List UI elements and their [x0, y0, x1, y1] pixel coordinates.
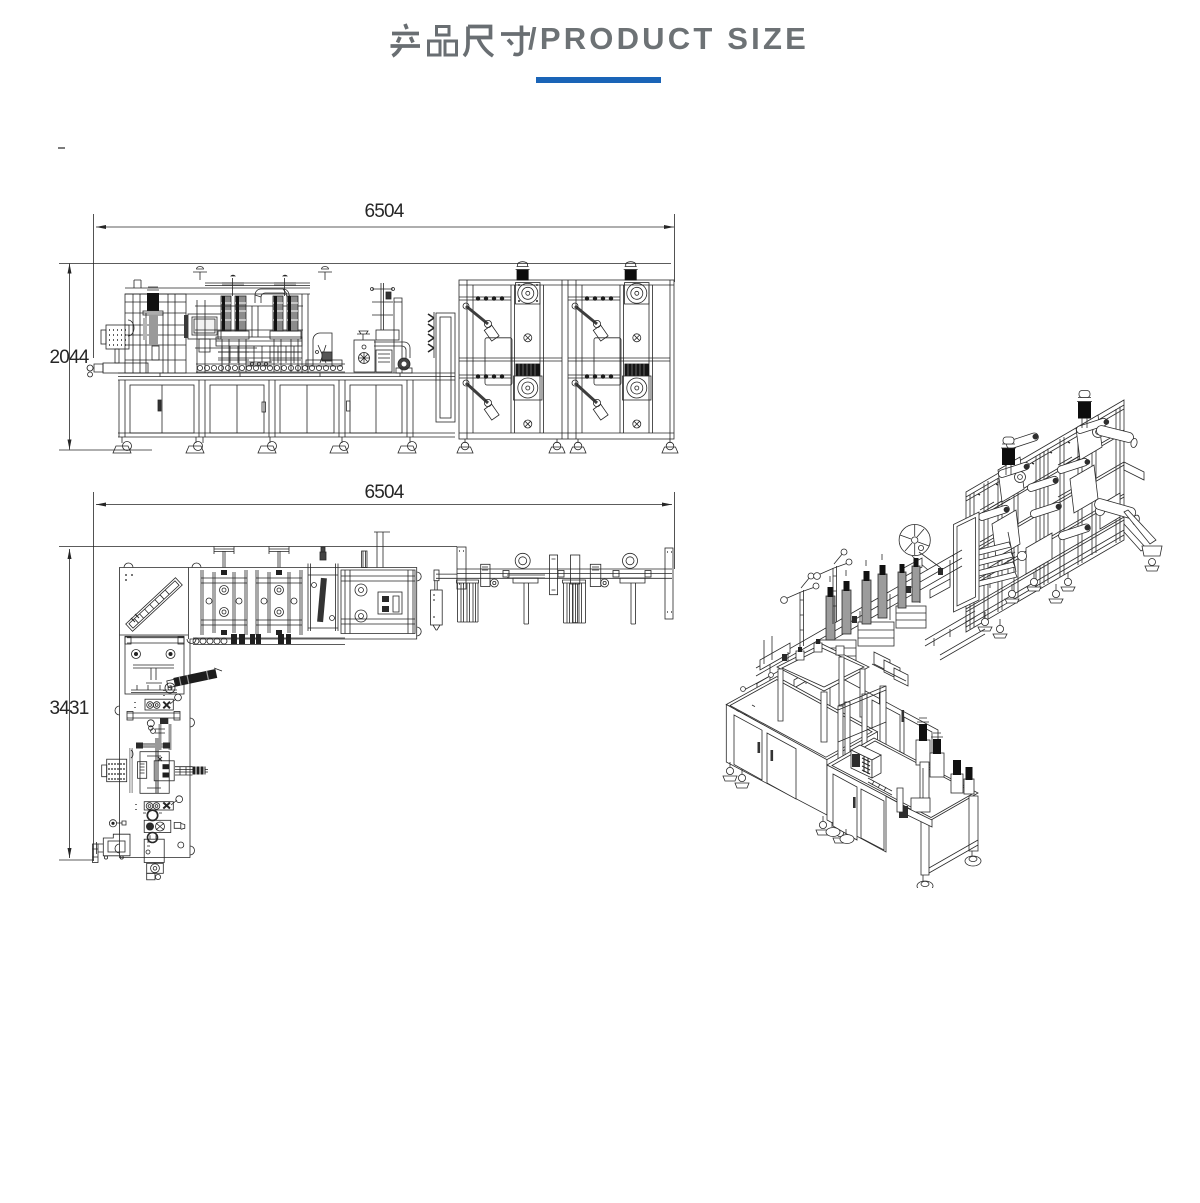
svg-text:6504: 6504 [364, 482, 404, 503]
svg-text:6504: 6504 [364, 201, 404, 222]
